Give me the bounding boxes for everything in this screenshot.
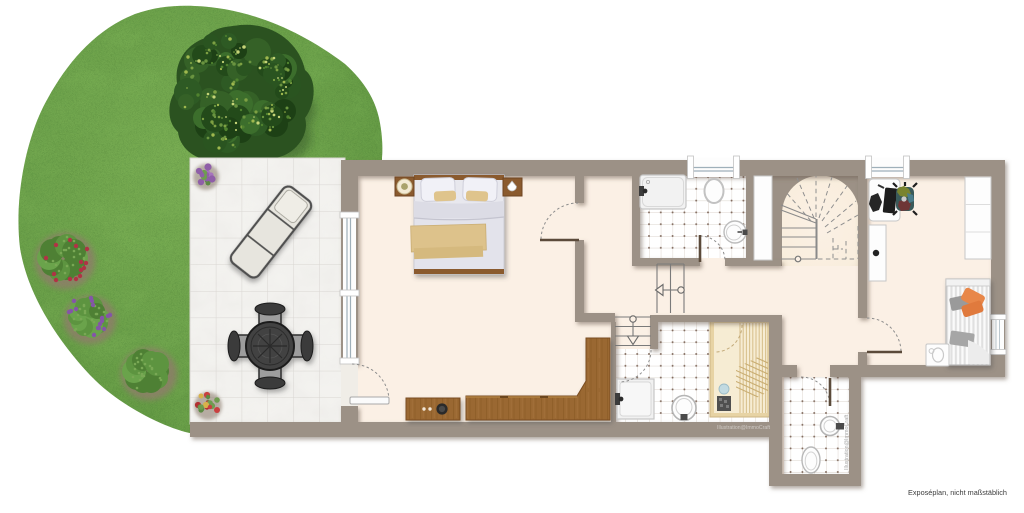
svg-text:Exposéplan, nicht maßstäblich: Exposéplan, nicht maßstäblich: [908, 488, 1007, 497]
svg-text:Illustration@ImmoCraft: Illustration@ImmoCraft: [844, 414, 850, 470]
svg-text:Illustration@ImmoCraft: Illustration@ImmoCraft: [717, 425, 771, 431]
